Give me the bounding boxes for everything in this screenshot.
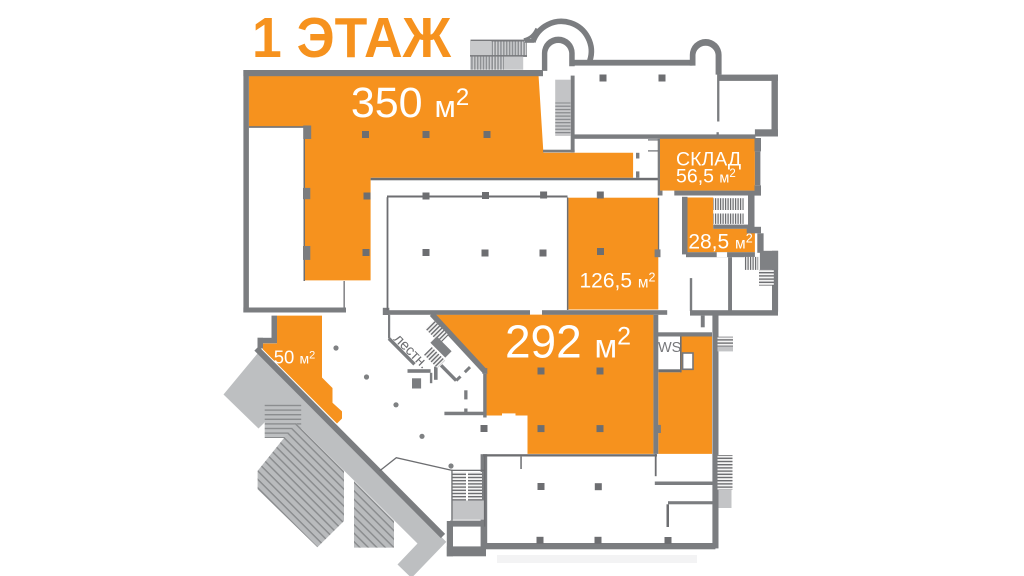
- svg-text:WS: WS: [658, 340, 681, 356]
- svg-text:50 м2: 50 м2: [274, 347, 315, 368]
- svg-text:1 ЭТАЖ: 1 ЭТАЖ: [252, 6, 451, 70]
